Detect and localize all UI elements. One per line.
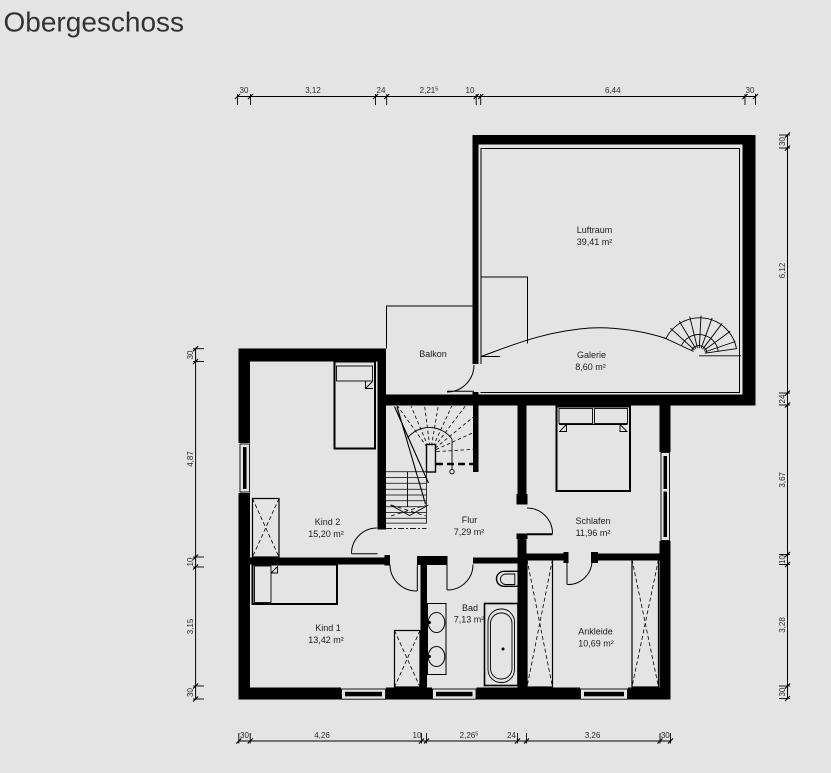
svg-text:30: 30: [746, 86, 755, 95]
svg-text:Kind 1: Kind 1: [315, 623, 341, 633]
svg-text:24: 24: [778, 394, 787, 403]
svg-text:10: 10: [778, 555, 787, 564]
svg-text:39,41 m²: 39,41 m²: [577, 237, 613, 247]
svg-text:8,60 m²: 8,60 m²: [575, 362, 606, 372]
svg-text:10,69 m²: 10,69 m²: [578, 639, 614, 649]
svg-text:30: 30: [186, 350, 195, 359]
svg-text:3,15: 3,15: [186, 618, 195, 634]
svg-text:24: 24: [507, 731, 516, 740]
svg-text:7,29 m²: 7,29 m²: [454, 527, 485, 537]
svg-text:Obergeschoss: Obergeschoss: [4, 7, 185, 38]
svg-text:30: 30: [186, 688, 195, 697]
svg-text:30: 30: [240, 86, 249, 95]
svg-text:Luftraum: Luftraum: [577, 225, 613, 235]
svg-text:3,28: 3,28: [778, 617, 787, 633]
svg-text:13,42 m²: 13,42 m²: [308, 635, 344, 645]
svg-text:Flur: Flur: [462, 515, 478, 525]
svg-text:30: 30: [778, 687, 787, 696]
svg-text:3,12: 3,12: [305, 86, 321, 95]
svg-text:7,13 m²: 7,13 m²: [454, 615, 485, 625]
svg-text:4,87: 4,87: [186, 451, 195, 467]
svg-text:10: 10: [466, 86, 475, 95]
svg-text:Bad: Bad: [462, 603, 478, 613]
svg-text:30: 30: [240, 731, 249, 740]
svg-text:30: 30: [661, 731, 670, 740]
svg-text:Galerie: Galerie: [577, 350, 606, 360]
svg-text:Schlafen: Schlafen: [575, 516, 610, 526]
svg-text:3,67: 3,67: [778, 471, 787, 487]
svg-text:24: 24: [377, 86, 386, 95]
svg-text:Kind 2: Kind 2: [315, 517, 341, 527]
svg-text:6,12: 6,12: [778, 262, 787, 278]
svg-text:3,26: 3,26: [585, 731, 601, 740]
svg-text:30: 30: [778, 137, 787, 146]
svg-text:15,20 m²: 15,20 m²: [308, 529, 344, 539]
svg-text:10: 10: [413, 731, 422, 740]
svg-text:6,44: 6,44: [605, 86, 621, 95]
svg-text:10: 10: [186, 557, 195, 566]
svg-text:11,96 m²: 11,96 m²: [576, 528, 611, 538]
svg-text:4,26: 4,26: [314, 731, 330, 740]
svg-text:Ankleide: Ankleide: [578, 627, 613, 637]
svg-text:Balkon: Balkon: [419, 349, 447, 359]
